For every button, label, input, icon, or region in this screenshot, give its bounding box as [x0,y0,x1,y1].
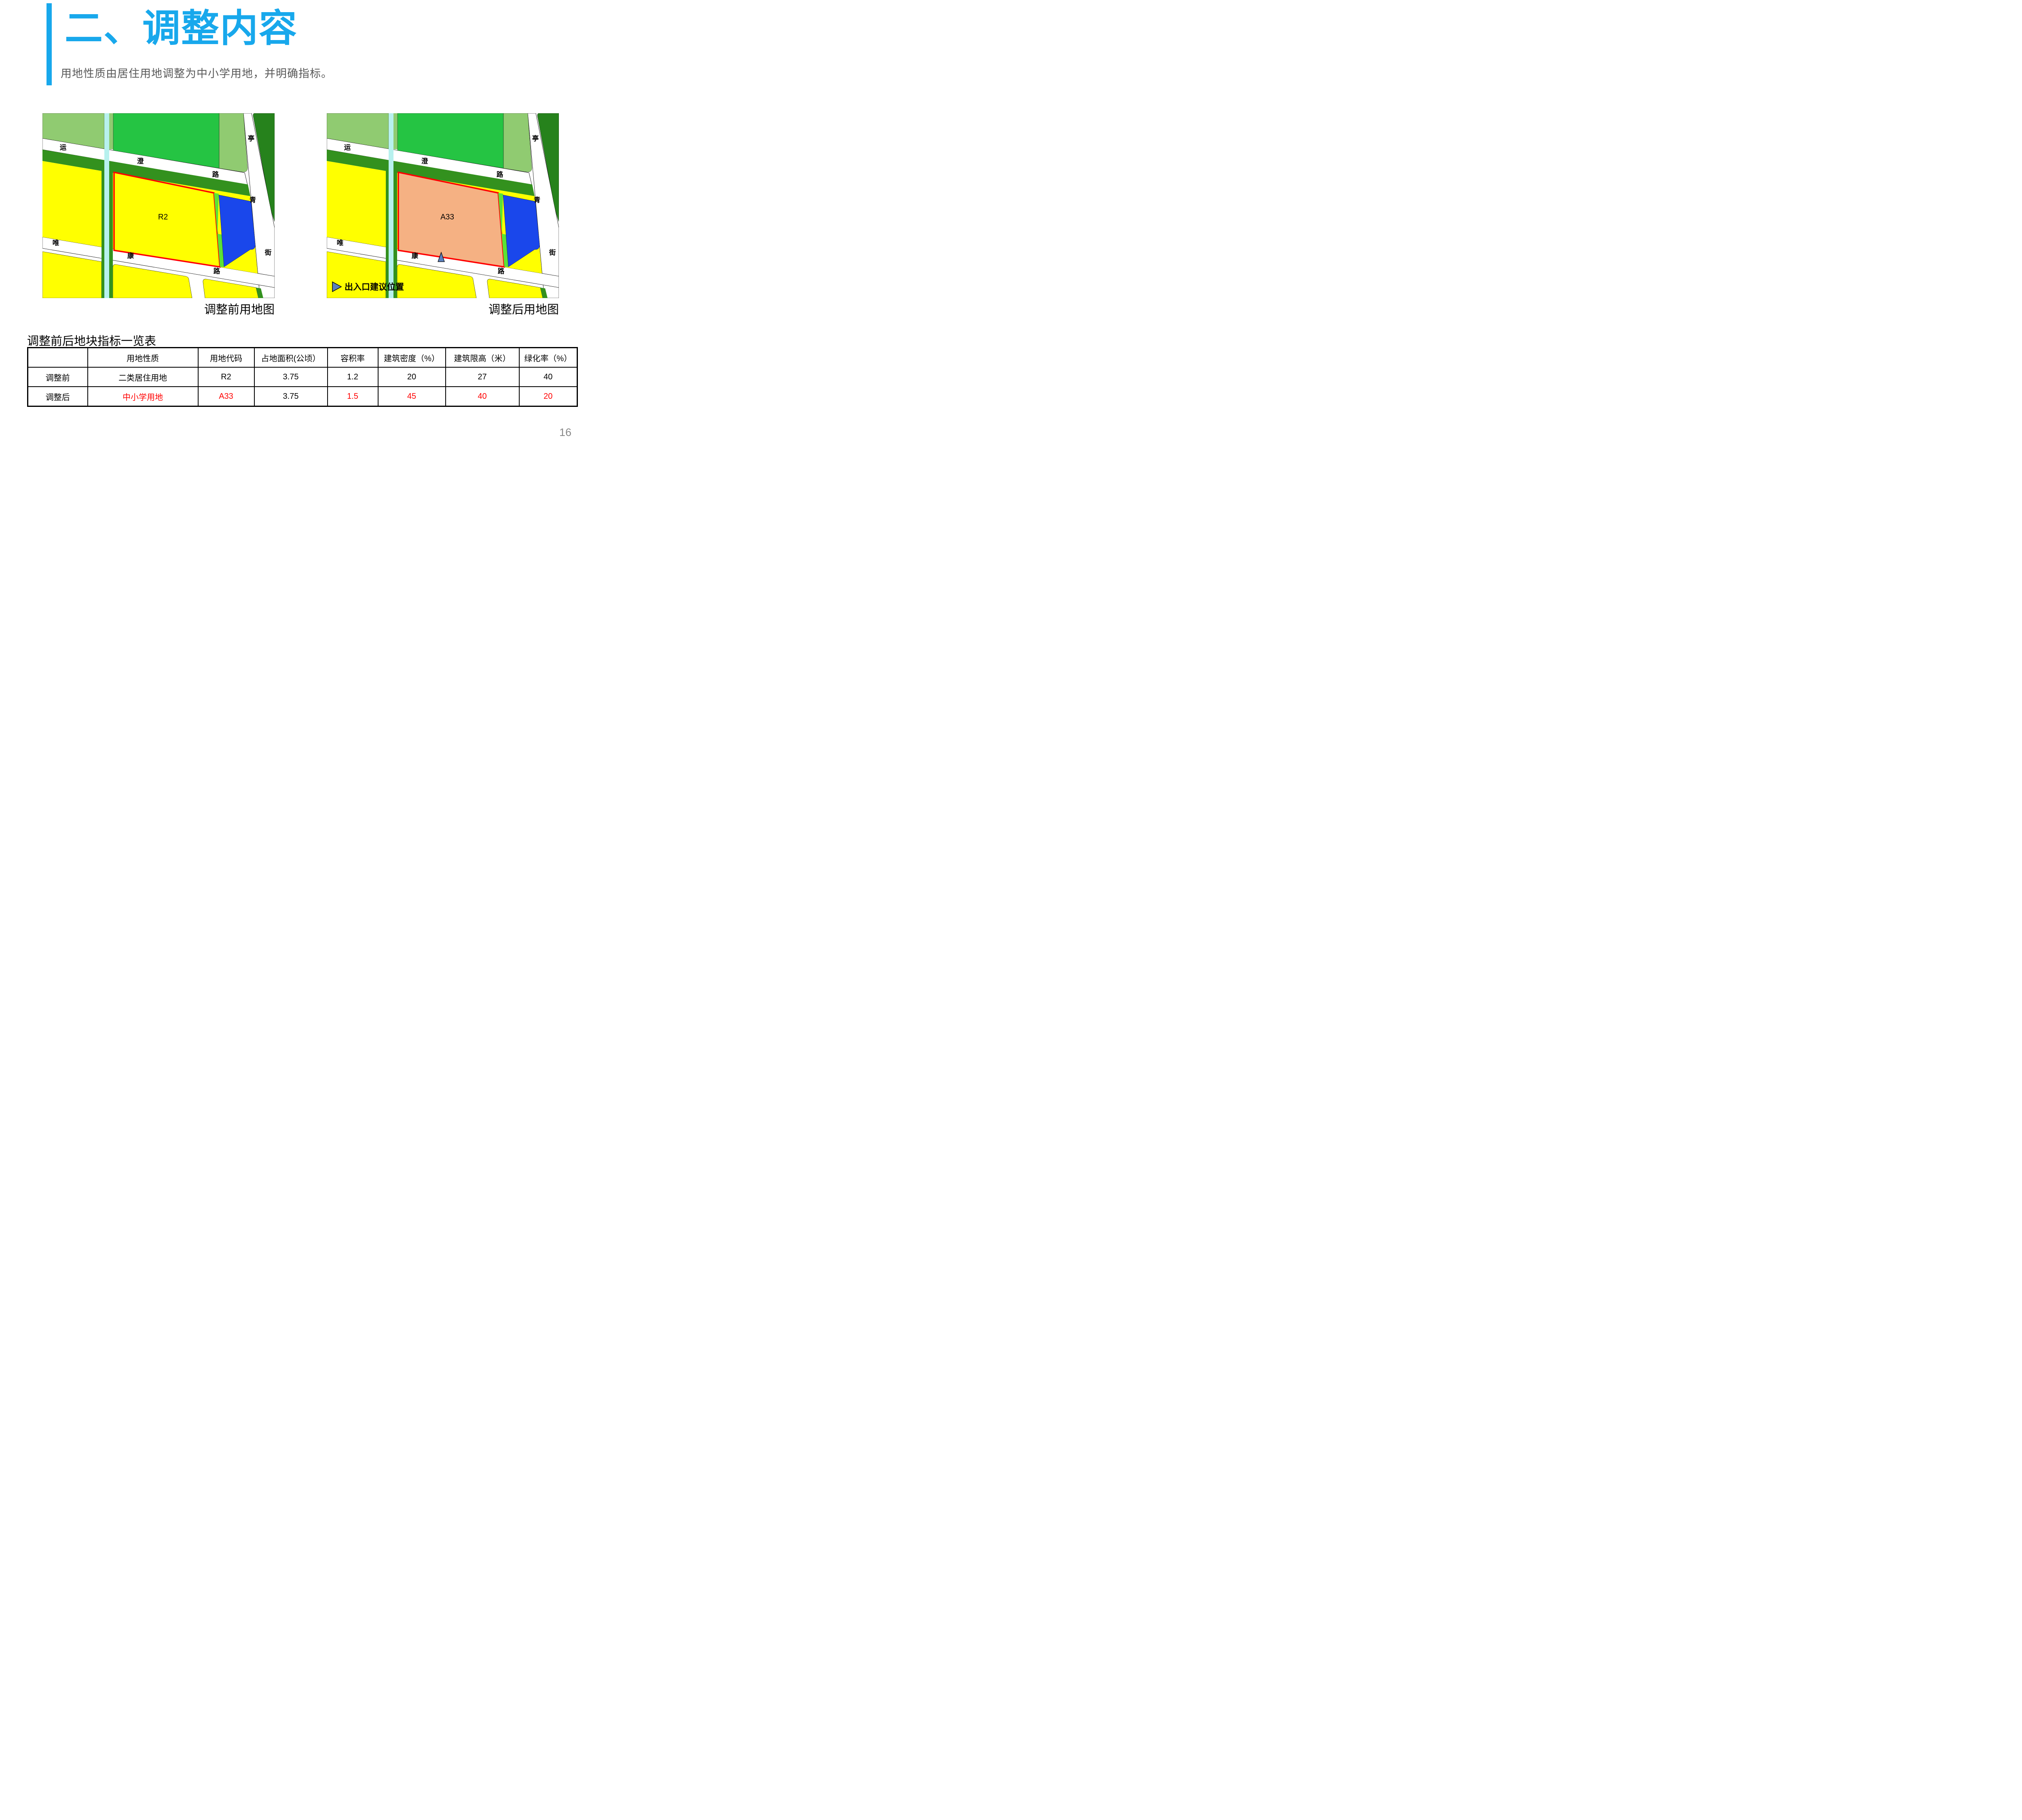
title-accent-bar [47,3,52,85]
row-label: 调整前 [28,367,88,387]
canal-bank-left [386,162,389,298]
canal-bank-right [393,162,397,298]
parcel-code-label: R2 [158,213,168,222]
header-empty [28,348,88,368]
street-label: 路 [497,170,503,178]
cell-green-rate: 40 [519,367,577,387]
street-label: 亭 [532,134,539,142]
map-svg: 运澄路亭青街唯康路A33出入口建议位置 [327,113,559,298]
parcel-green-top-right [219,113,247,172]
parcel-green-sliver [109,113,113,149]
street-label: 青 [534,196,541,204]
header-density: 建筑密度（%） [378,348,446,368]
parcel-code-label: A33 [440,213,454,222]
cell-far: 1.2 [328,367,378,387]
street-label: 唯 [337,239,344,247]
cell-density: 45 [378,387,446,406]
street-label: 澄 [137,157,144,165]
cell-land-code: A33 [198,387,254,406]
street-label: 澄 [421,157,428,165]
table-header-row: 用地性质 用地代码 占地面积(公顷） 容积率 建筑密度（%） 建筑限高（米） 绿… [28,348,577,368]
header-area: 占地面积(公顷） [254,348,328,368]
cell-height-limit: 40 [446,387,519,406]
table-row-before: 调整前 二类居住用地 R2 3.75 1.2 20 27 40 [28,367,577,387]
canal [389,113,393,298]
canal [104,113,109,298]
header-land-use: 用地性质 [88,348,198,368]
land-use-map-after: 运澄路亭青街唯康路A33出入口建议位置 [327,113,559,298]
page-title: 二、调整内容 [65,7,298,49]
cell-area: 3.75 [254,367,328,387]
table-row-after: 调整后 中小学用地 A33 3.75 1.5 45 40 20 [28,387,577,406]
page-number: 16 [559,426,571,439]
cell-green-rate: 20 [519,387,577,406]
legend-label: 出入口建议位置 [345,282,404,292]
street-label: 路 [212,170,219,178]
cell-land-use: 中小学用地 [88,387,198,406]
street-label: 街 [549,248,556,256]
page-subtitle: 用地性质由居住用地调整为中小学用地，并明确指标。 [61,65,332,80]
street-label: 康 [412,252,419,260]
street-label: 唯 [53,239,59,247]
map-svg: 运澄路亭青街唯康路R2 [42,113,275,298]
indicator-table: 用地性质 用地代码 占地面积(公顷） 容积率 建筑密度（%） 建筑限高（米） 绿… [27,347,578,407]
cell-land-use: 二类居住用地 [88,367,198,387]
street-label: 路 [214,267,220,275]
table-title: 调整前后地块指标一览表 [27,332,156,349]
street-label: 亭 [248,134,255,142]
parcel-green-sliver [393,113,398,149]
row-label: 调整后 [28,387,88,406]
header-height-limit: 建筑限高（米） [446,348,519,368]
cell-density: 20 [378,367,446,387]
cell-far: 1.5 [328,387,378,406]
map-before-caption: 调整前用地图 [42,300,275,317]
street-label: 青 [250,196,256,204]
cell-height-limit: 27 [446,367,519,387]
cell-area: 3.75 [254,387,328,406]
parcel-green-top-right [503,113,532,172]
street-label: 运 [344,144,351,151]
street-label: 路 [498,267,505,275]
land-use-map-before: 运澄路亭青街唯康路R2 [42,113,275,298]
street-label: 运 [60,144,67,151]
street-label: 康 [127,252,134,260]
cell-land-code: R2 [198,367,254,387]
header-far: 容积率 [328,348,378,368]
street-label: 街 [264,248,272,256]
header-green-rate: 绿化率（%） [519,348,577,368]
header-land-code: 用地代码 [198,348,254,368]
canal-bank-right [109,162,113,298]
map-after-caption: 调整后用地图 [327,300,559,317]
canal-bank-left [102,162,104,298]
